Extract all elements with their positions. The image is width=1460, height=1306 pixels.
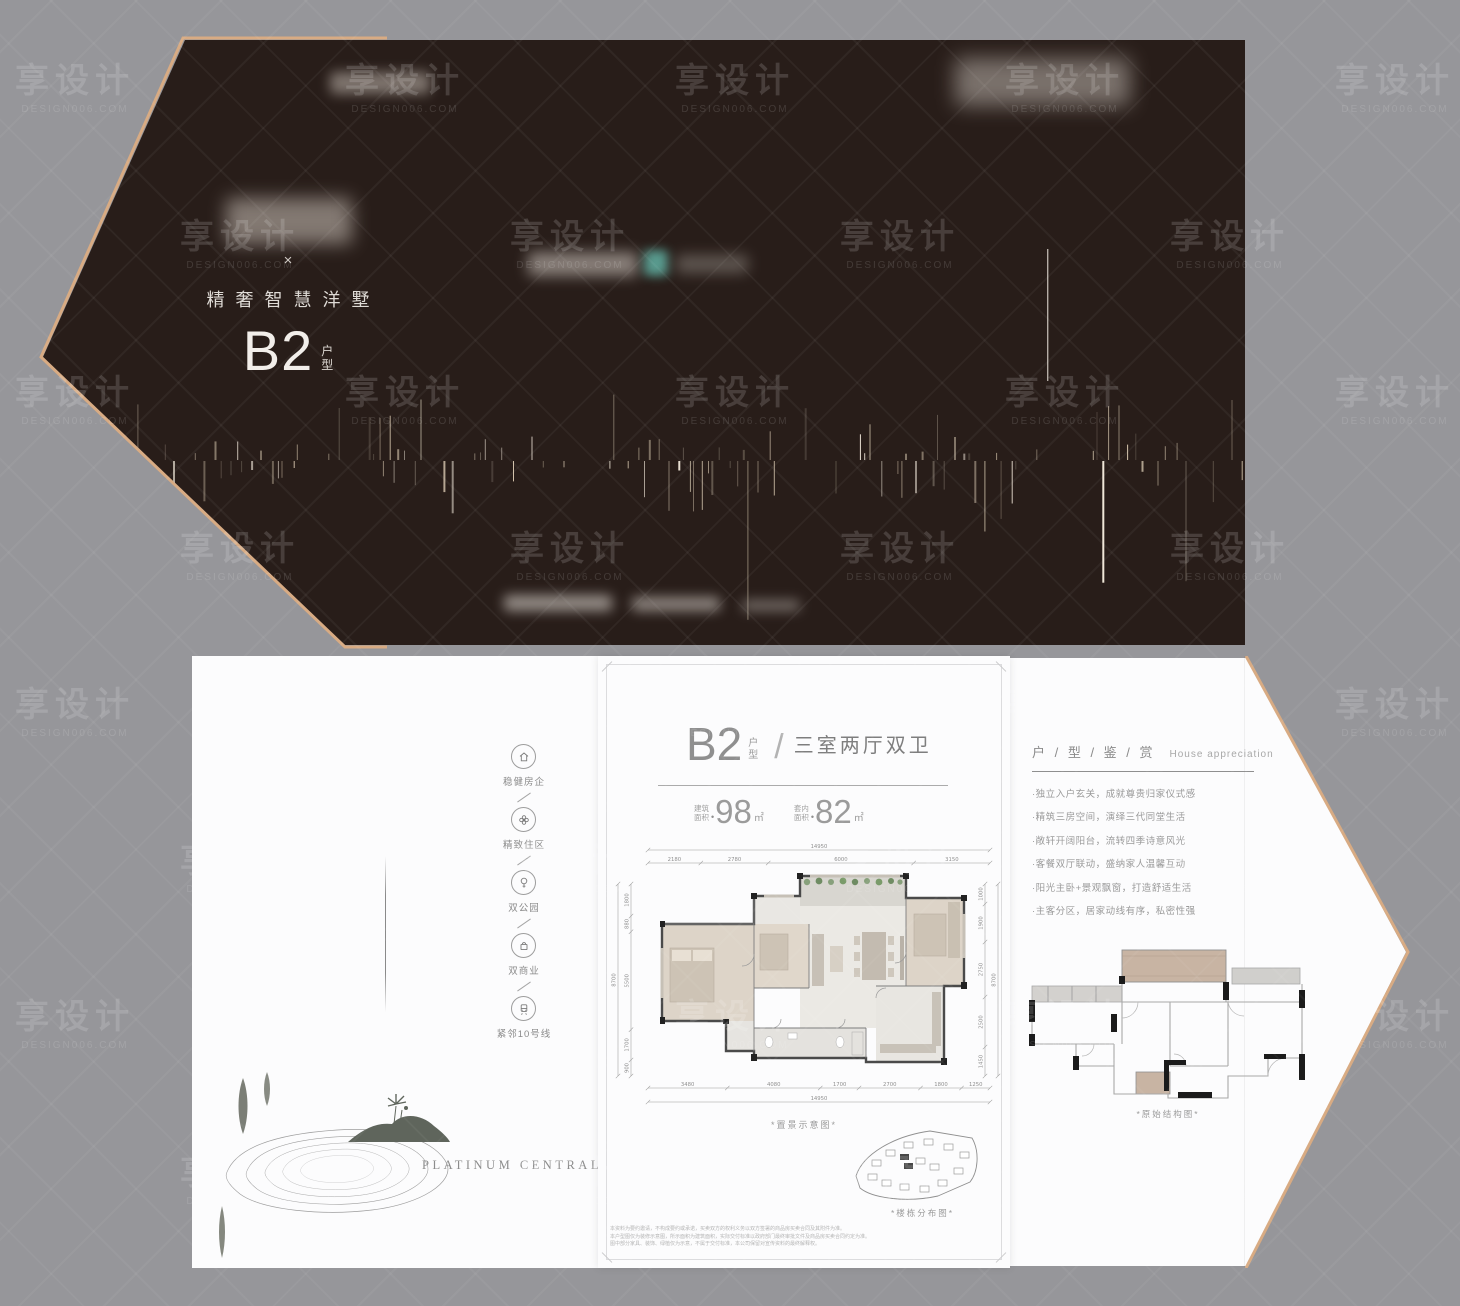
unit-header: B2 户 型 / 三室两厅双卫 [686,724,932,764]
dimension-label: 5500 [625,973,631,987]
site-highlighted-buildings [900,1154,913,1169]
dimension-label: 1250 [969,1082,983,1088]
unit-sheet: B2 户 型 / 三室两厅双卫 建筑 面积 • 98 ㎡ 套内 [598,656,1010,1268]
dimension-label: 1800 [934,1082,948,1088]
watermark: 享设计DESIGN006.COM [1335,365,1455,427]
watermark: 享设计DESIGN006.COM [15,1301,135,1306]
watermark: 享设计DESIGN006.COM [1335,53,1455,115]
gross-area: 建筑 面积 • 98 ㎡ [694,798,764,826]
dot: • [711,812,714,822]
appreciation-bullets: ·独立入户玄关，成就尊贵归家仪式感·精筑三房空间，演绎三代同堂生活·敞轩开阔阳台… [1032,783,1272,923]
value-props-sidebar: 稳健房企精致住区双公园双商业紧邻10号线 [486,744,562,1040]
appreciation-bullet: ·客餐双厅联动，盛纳家人温馨互动 [1032,853,1272,876]
appreciation-bullet: ·主客分区，居家动线有序，私密性强 [1032,900,1272,923]
floorplan-rooms [662,876,964,1062]
value-prop-label: 双公园 [508,900,540,914]
main-floorplan: 1495021802780600031503480408017002700180… [604,836,1008,1118]
value-prop-label: 稳健房企 [503,774,545,788]
watermark: 享设计DESIGN006.COM [675,1301,795,1306]
dimension-label: 3150 [945,857,959,863]
brochure-canvas: × 精奢智慧洋墅 B2 户 型 B2 户 型 / 三室两厅双卫 [0,0,1460,1306]
dimension-label: 2750 [979,962,985,976]
blurred-logo-left [226,198,352,244]
sqm-unit: ㎡ [754,809,764,824]
dimension-label: 1800 [625,893,631,907]
dimension-label: 6000 [834,857,848,863]
vertical-divider-line [385,856,386,1012]
structural-caption: *原始结构图* [1068,1108,1268,1120]
value-prop-item: 双公园 [508,870,540,914]
top-tagline: 精奢智慧洋墅 [130,286,446,312]
train-icon [511,996,536,1021]
blurred-logo-teal-icon [644,250,668,276]
appreciation-header: 户 / 型 / 鉴 / 赏 House appreciation [1032,742,1274,761]
appreciation-title: 户 / 型 / 鉴 / 赏 [1032,742,1156,761]
appreciation-bullet: ·敞轩开阔阳台，流转四季诗意风光 [1032,830,1272,853]
appreciation-bullet: ·精筑三房空间，演绎三代同堂生活 [1032,806,1272,829]
value-prop-label: 双商业 [508,963,540,977]
watermark: 享设计DESIGN006.COM [345,1301,465,1306]
unit-code: B2 [686,724,742,764]
header-rule [658,785,948,786]
value-prop-item: 紧邻10号线 [497,996,552,1040]
dimension-label: 1700 [833,1082,847,1088]
dimension-label: 1450 [979,1054,985,1068]
slash-separator: / [774,730,783,764]
area-label: 面积 [694,814,709,823]
gross-area-value: 98 [715,798,752,826]
slash-divider [517,982,531,992]
dimension-label: 880 [625,918,631,929]
appreciation-bullet: ·阳光主卧+景观飘窗，打造舒适生活 [1032,877,1272,900]
blurred-logo-small [330,72,430,94]
tree-icon [511,870,536,895]
dimension-label: 8700 [612,973,618,987]
value-prop-label: 紧邻10号线 [497,1026,552,1040]
dimension-label: 1900 [979,916,985,930]
dimension-label: 1700 [625,1037,631,1051]
vertical-accent-line [1047,249,1048,381]
disclaimer-line: 本资料为要约邀请，不构成要约或承诺，买卖双方的权利义务以双方签署的商品房买卖合同… [610,1226,998,1234]
watermark: 享设计DESIGN006.COM [1005,1301,1125,1306]
dimension-label: 1000 [979,887,985,901]
structural-floorplan [1018,926,1318,1111]
slash-divider [517,793,531,803]
times-separator: × [222,252,354,269]
watermark: 享设计DESIGN006.COM [15,677,135,739]
dimension-label: 900 [625,1062,631,1073]
disclaimer-text: 本资料为要约邀请，不构成要约或承诺，买卖双方的权利义务以双方签署的商品房买卖合同… [610,1226,998,1249]
unit-suffix-xing: 型 [748,750,758,762]
unit-suffix-hu: 户 [321,344,333,358]
dimension-label: 14950 [811,1096,828,1102]
house-icon [511,744,536,769]
flower-icon [511,807,536,832]
blurred-footer-text-3 [742,600,800,611]
appreciation-bullet: ·独立入户玄关，成就尊贵归家仪式感 [1032,783,1272,806]
blurred-logo-center-right [676,255,748,273]
net-area-value: 82 [815,798,852,826]
unit-layout-label: 三室两厅双卫 [794,729,932,758]
dot: • [811,812,814,822]
disclaimer-line: 本户型图仅为装修示意图，所示面积为建筑面积，实际交付标准以政府部门最终审批文件及… [610,1234,998,1242]
blurred-logo-topright [955,58,1130,106]
dimension-label: 2500 [979,1015,985,1029]
sqm-unit: ㎡ [854,809,864,824]
unit-suffix-xing: 型 [321,358,333,372]
dimension-label: 8700 [992,973,998,987]
brand-name: PLATINUM CENTRAL [422,1158,602,1173]
site-caption: *楼栋分布图* [850,1207,995,1219]
site-plan [850,1124,995,1204]
dimension-label: 2180 [668,857,682,863]
slash-divider [517,856,531,866]
shop-icon [511,933,536,958]
value-prop-item: 精致住区 [503,807,545,851]
blurred-footer-text-1 [504,595,612,611]
dimension-label: 2780 [728,857,742,863]
island-lotus [342,1086,457,1148]
appreciation-rule [1032,771,1254,772]
watermark: 享设计DESIGN006.COM [1335,1301,1455,1306]
appreciation-subtitle: House appreciation [1170,749,1274,760]
value-prop-item: 稳健房企 [503,744,545,788]
value-prop-item: 双商业 [508,933,540,977]
watermark: 享设计DESIGN006.COM [15,989,135,1051]
value-prop-label: 精致住区 [503,837,545,851]
top-unit-title: B2 户 型 [200,326,376,376]
blurred-footer-text-2 [632,597,720,611]
area-figures: 建筑 面积 • 98 ㎡ 套内 面积 • 82 ㎡ [694,798,864,826]
dimension-label: 3480 [681,1082,695,1088]
net-area: 套内 面积 • 82 ㎡ [794,798,864,826]
slash-divider [517,919,531,929]
dimension-label: 4080 [767,1082,781,1088]
area-label: 面积 [794,814,809,823]
blurred-logo-center [528,252,638,276]
dimension-label: 2700 [883,1082,897,1088]
unit-code-b: B2 [243,326,314,376]
dimension-label: 14950 [811,844,828,850]
disclaimer-line: 图中部分家具、装饰、绿植仅为示意，不属于交付标准，本公司保留对宣传资料的最终解释… [610,1241,998,1249]
unit-suffix-hu: 户 [748,738,758,750]
